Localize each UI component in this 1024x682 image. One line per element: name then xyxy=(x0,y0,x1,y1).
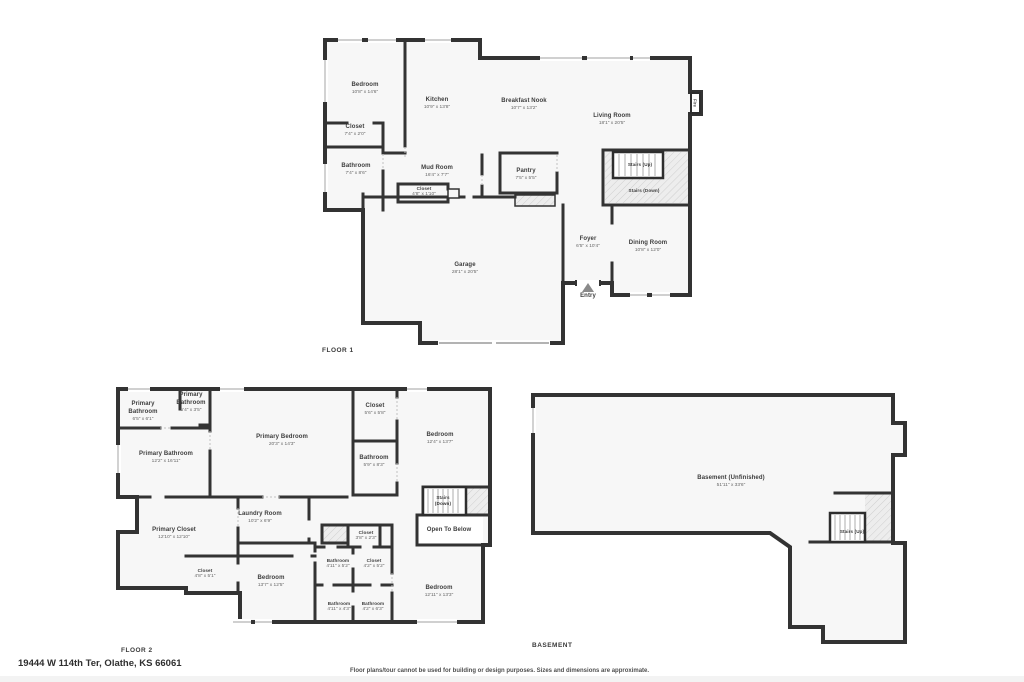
stairs-hatch-area xyxy=(466,487,490,515)
room-label-dining-room: Dining Room10'8" x 12'0" xyxy=(629,240,667,254)
room-label-primary-bedroom: Primary Bedroom20'3" x 14'3" xyxy=(256,434,308,448)
floor2-title: FLOOR 2 xyxy=(121,647,153,654)
label-stairs-up-basement: Stairs (Up) xyxy=(840,529,864,535)
room-label-mud-room: Mud Room16'4" x 7'7" xyxy=(421,165,453,179)
room-label-bedroom-f2a: Bedroom12'4" x 13'7" xyxy=(426,432,453,446)
room-label-closet-f2d: Closet4'2" x 5'2" xyxy=(364,558,385,570)
floor1-title: FLOOR 1 xyxy=(322,347,354,354)
room-label-bedroom-f2c: Bedroom12'11" x 13'3" xyxy=(425,585,454,599)
room-label-bedroom-f1: Bedroom10'8" x 14'6" xyxy=(351,82,378,96)
room-label-laundry-room: Laundry Room10'2" x 6'9" xyxy=(238,511,282,525)
room-label-foyer: Foyer6'5" x 10'4" xyxy=(576,236,600,250)
room-label-bathroom-f2d: Bathroom4'2" x 6'3" xyxy=(362,601,385,613)
label-fireplace: Fire xyxy=(692,99,697,107)
room-label-primary-bathroom-c: Primary Bathroom12'2" x 16'11" xyxy=(139,451,193,465)
entry-opening xyxy=(576,280,600,292)
garage-entry-door-hatch xyxy=(515,195,555,206)
room-label-bedroom-f2b: Bedroom13'7" x 12'5" xyxy=(257,575,284,589)
room-label-living-room: Living Room18'1" x 20'5" xyxy=(593,113,630,127)
linen-hatch-box xyxy=(322,525,348,543)
room-label-primary-bathroom-b: Primary Bathroom5'4" x 3'5" xyxy=(172,392,210,414)
room-label-bathroom-f2a: Bathroom5'9" x 8'3" xyxy=(359,455,388,469)
room-label-closet-f1a: Closet7'4" x 2'0" xyxy=(345,124,366,138)
room-label-primary-closet: Primary Closet12'10" x 12'10" xyxy=(152,527,196,541)
label-entry: Entry xyxy=(580,293,596,301)
room-label-closet-f2c: Closet3'8" x 2'3" xyxy=(356,530,377,542)
label-stairs-down-f2: Stairs (Down) xyxy=(429,495,457,507)
label-stairs-down-f1: Stairs (Down) xyxy=(629,188,660,194)
room-label-breakfast-nook: Breakfast Nook10'7" x 13'2" xyxy=(501,98,546,112)
room-label-primary-bathroom-a: Primary Bathroom6'5" x 6'1" xyxy=(124,401,162,423)
disclaimer-text: Floor plans/tour cannot be used for buil… xyxy=(350,668,649,674)
basement-windows xyxy=(530,408,536,433)
room-label-closet-f2a: Closet5'6" x 5'8" xyxy=(365,403,386,417)
floorplan-page: Bedroom10'8" x 14'6" Kitchen10'9" x 13'8… xyxy=(0,0,1024,682)
room-label-closet-f2b: Closet4'8" x 5'1" xyxy=(195,568,216,580)
label-open-to-below: Open To Below xyxy=(427,527,472,535)
garage-door xyxy=(438,340,550,346)
room-label-kitchen: Kitchen10'9" x 13'8" xyxy=(424,97,450,111)
footer-bar xyxy=(0,676,1024,682)
room-label-garage: Garage28'1" x 20'5" xyxy=(452,262,478,276)
stairs-hatch-area xyxy=(865,493,893,542)
closet-shelf xyxy=(448,189,459,198)
basement-title: BASEMENT xyxy=(532,642,572,649)
room-label-bathroom-f2b: Bathroom4'11" x 5'2" xyxy=(326,558,349,570)
property-address: 19444 W 114th Ter, Olathe, KS 66061 xyxy=(18,658,182,669)
room-label-closet-f1b: Closet4'8" x 1'10" xyxy=(412,186,436,198)
room-label-bathroom-f2c: Bathroom4'11" x 4'3" xyxy=(327,601,350,613)
room-label-pantry: Pantry7'5" x 5'5" xyxy=(516,168,537,182)
room-label-basement: Basement (Unfinished)51'11" x 33'6" xyxy=(697,475,764,489)
room-label-bathroom-f1: Bathroom7'4" x 8'6" xyxy=(341,163,370,177)
basement-plan-svg xyxy=(528,390,912,648)
label-stairs-up-f1: Stairs (Up) xyxy=(628,162,652,168)
